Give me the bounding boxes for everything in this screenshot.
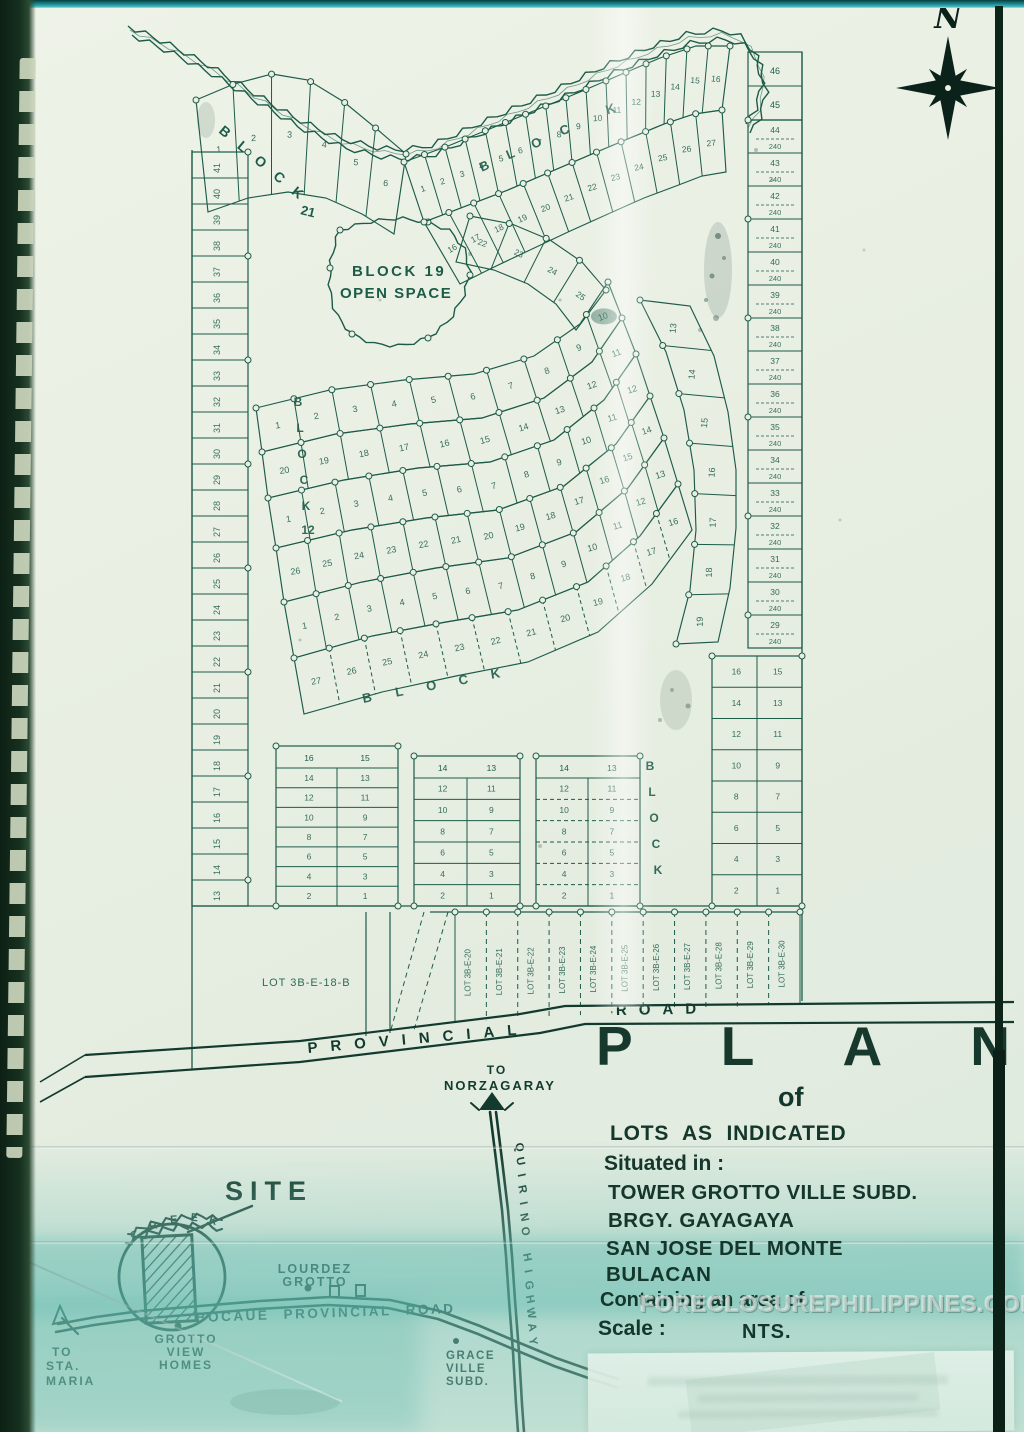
- svg-text:13: 13: [212, 891, 222, 901]
- svg-text:11: 11: [361, 793, 370, 803]
- svg-text:LOT 3B-E-20: LOT 3B-E-20: [464, 949, 473, 997]
- svg-text:10: 10: [304, 812, 314, 822]
- svg-text:16: 16: [212, 813, 222, 823]
- svg-text:C: C: [652, 837, 661, 851]
- svg-text:11: 11: [608, 784, 617, 794]
- plan-letter: L: [721, 1014, 755, 1076]
- svg-text:10: 10: [438, 805, 448, 815]
- svg-text:3: 3: [352, 404, 359, 415]
- svg-text:240: 240: [769, 142, 782, 151]
- svg-text:B: B: [294, 395, 303, 409]
- svg-text:H: H: [520, 1252, 533, 1263]
- plan-letter: A: [842, 1014, 882, 1076]
- svg-text:16: 16: [667, 516, 679, 528]
- svg-text:23: 23: [453, 641, 465, 653]
- svg-text:9: 9: [576, 121, 582, 131]
- plat-boundaries: [192, 52, 802, 1069]
- svg-text:E: E: [170, 1214, 178, 1226]
- svg-text:21: 21: [450, 534, 462, 546]
- svg-text:38: 38: [770, 323, 780, 333]
- svg-text:15: 15: [360, 753, 370, 763]
- svg-text:240: 240: [769, 538, 782, 547]
- svg-text:7: 7: [363, 832, 368, 842]
- svg-text:I: I: [521, 1269, 533, 1275]
- svg-text:41: 41: [212, 163, 222, 173]
- svg-text:LOT 3B-E-23: LOT 3B-E-23: [558, 946, 567, 994]
- svg-text:18: 18: [358, 448, 370, 460]
- svg-text:5: 5: [498, 153, 505, 164]
- svg-text:18: 18: [212, 761, 222, 771]
- svg-text:11: 11: [612, 520, 624, 532]
- svg-text:SITE: SITE: [225, 1176, 313, 1206]
- svg-text:12: 12: [559, 784, 569, 794]
- svg-text:22: 22: [212, 657, 222, 667]
- right-band: 13141516171819: [637, 297, 736, 647]
- svg-text:16: 16: [711, 73, 722, 84]
- svg-text:8: 8: [562, 826, 567, 836]
- svg-text:16: 16: [304, 753, 314, 763]
- compass-rose-icon: N: [896, 1, 1000, 140]
- svg-text:3: 3: [610, 869, 615, 879]
- svg-text:LOT 3B-E-28: LOT 3B-E-28: [715, 942, 724, 990]
- svg-text:9: 9: [489, 805, 494, 815]
- svg-text:40: 40: [770, 257, 780, 267]
- svg-text:1: 1: [363, 891, 368, 901]
- band-5: 12345678910111213: [281, 435, 678, 658]
- svg-text:14: 14: [559, 763, 569, 773]
- svg-text:8: 8: [523, 469, 530, 480]
- svg-text:R: R: [148, 1219, 159, 1233]
- svg-text:2: 2: [562, 890, 567, 900]
- svg-text:24: 24: [546, 264, 559, 277]
- scale-value: NTS.: [742, 1321, 792, 1344]
- svg-text:240: 240: [769, 340, 782, 349]
- svg-text:33: 33: [212, 371, 222, 381]
- svg-text:34: 34: [212, 345, 222, 355]
- svg-text:1: 1: [610, 890, 615, 900]
- svg-text:7: 7: [490, 480, 497, 491]
- svg-text:9: 9: [775, 760, 780, 770]
- svg-text:14: 14: [212, 865, 222, 875]
- ghost-text-smudge: [678, 1409, 938, 1419]
- svg-text:18: 18: [619, 571, 631, 583]
- title-line-barangay: BRGY. GAYAGAYA: [608, 1209, 794, 1233]
- svg-text:6: 6: [440, 848, 445, 858]
- svg-text:32: 32: [770, 521, 780, 531]
- svg-text:13: 13: [553, 404, 566, 417]
- svg-text:NORZAGARAY: NORZAGARAY: [444, 1078, 556, 1093]
- svg-text:9: 9: [363, 812, 368, 822]
- svg-text:15: 15: [690, 75, 700, 86]
- svg-text:BLOCK 19: BLOCK 19: [352, 263, 446, 280]
- svg-text:3: 3: [489, 869, 494, 879]
- svg-text:Y: Y: [526, 1336, 539, 1346]
- svg-text:25: 25: [212, 579, 222, 589]
- svg-text:1: 1: [419, 183, 427, 194]
- svg-text:27: 27: [310, 675, 322, 687]
- plan-of-label: of: [778, 1082, 803, 1113]
- svg-text:14: 14: [640, 424, 653, 437]
- title-line-province: BULACAN: [606, 1263, 712, 1287]
- title-line-situated: Situated in :: [604, 1152, 724, 1176]
- svg-text:11: 11: [773, 729, 782, 739]
- svg-text:O: O: [518, 1226, 532, 1237]
- grid-block-4: 16151413121110987654321: [709, 653, 805, 909]
- svg-text:GRACE: GRACE: [446, 1350, 495, 1362]
- svg-text:4: 4: [307, 871, 312, 881]
- svg-text:7: 7: [489, 826, 494, 836]
- svg-text:24: 24: [353, 550, 365, 562]
- svg-text:11: 11: [487, 784, 496, 794]
- svg-text:12: 12: [586, 379, 599, 392]
- svg-text:2: 2: [440, 890, 445, 900]
- svg-text:18: 18: [544, 510, 556, 522]
- grid-block-3: 1413121110987654321: [533, 753, 643, 909]
- svg-text:17: 17: [573, 495, 585, 507]
- svg-text:7: 7: [775, 792, 780, 802]
- svg-text:1: 1: [489, 890, 494, 900]
- svg-text:LOT 3B-E-24: LOT 3B-E-24: [589, 945, 598, 993]
- svg-text:16: 16: [732, 667, 742, 677]
- svg-text:24: 24: [633, 161, 645, 173]
- svg-text:35: 35: [212, 319, 222, 329]
- svg-text:9: 9: [560, 558, 567, 569]
- svg-text:7: 7: [507, 380, 515, 391]
- svg-text:TO: TO: [487, 1063, 507, 1077]
- svg-text:N: N: [517, 1212, 530, 1223]
- svg-text:G: G: [522, 1280, 536, 1291]
- svg-text:20: 20: [559, 612, 571, 624]
- svg-text:13: 13: [773, 698, 783, 708]
- svg-text:17: 17: [708, 517, 718, 527]
- svg-text:3: 3: [459, 168, 466, 179]
- svg-text:240: 240: [769, 571, 782, 580]
- svg-text:24: 24: [212, 605, 222, 615]
- grid-block-2: 1413121110987654321: [411, 753, 523, 909]
- svg-text:B L O C K: B L O C K: [216, 122, 311, 205]
- svg-text:O: O: [649, 811, 658, 825]
- svg-text:GROTTO: GROTTO: [282, 1275, 347, 1289]
- svg-text:10: 10: [732, 760, 742, 770]
- svg-text:19: 19: [592, 596, 604, 608]
- svg-text:1: 1: [216, 144, 222, 154]
- svg-text:15: 15: [621, 451, 634, 463]
- title-line-city: SAN JOSE DEL MONTE: [606, 1237, 843, 1261]
- svg-text:A: A: [525, 1322, 538, 1333]
- svg-text:23: 23: [610, 171, 622, 183]
- svg-text:10: 10: [580, 434, 592, 446]
- svg-text:GROTTO: GROTTO: [154, 1332, 217, 1346]
- svg-text:4: 4: [562, 869, 567, 879]
- svg-text:240: 240: [769, 373, 782, 382]
- svg-text:14: 14: [304, 773, 314, 783]
- svg-text:19: 19: [212, 735, 222, 745]
- svg-text:5: 5: [489, 848, 494, 858]
- svg-text:22: 22: [418, 538, 430, 550]
- paper-patch-inner: [686, 1352, 941, 1432]
- svg-text:TO: TO: [52, 1345, 72, 1359]
- svg-text:12: 12: [301, 523, 315, 537]
- svg-text:4: 4: [734, 854, 739, 864]
- svg-text:25: 25: [574, 289, 588, 303]
- svg-text:18: 18: [704, 568, 714, 578]
- svg-text:24: 24: [417, 649, 429, 661]
- svg-text:OPEN SPACE: OPEN SPACE: [340, 285, 452, 302]
- svg-text:W: W: [524, 1307, 538, 1320]
- svg-text:H: H: [523, 1294, 536, 1305]
- svg-text:21: 21: [299, 202, 317, 220]
- svg-text:16: 16: [446, 242, 459, 255]
- svg-text:14: 14: [686, 369, 697, 380]
- svg-text:7: 7: [610, 826, 615, 836]
- svg-text:17: 17: [398, 441, 410, 453]
- svg-text:12: 12: [304, 793, 314, 803]
- svg-text:12: 12: [635, 496, 647, 508]
- svg-text:21: 21: [525, 626, 537, 638]
- svg-text:8: 8: [734, 792, 739, 802]
- svg-text:13: 13: [654, 468, 666, 480]
- svg-text:26: 26: [212, 553, 222, 563]
- svg-text:14: 14: [517, 421, 530, 434]
- plan-letter: P: [596, 1014, 633, 1076]
- svg-text:16: 16: [598, 474, 610, 486]
- svg-text:8: 8: [543, 365, 551, 376]
- svg-text:4: 4: [391, 398, 398, 409]
- svg-text:12: 12: [631, 97, 641, 107]
- svg-text:R: R: [515, 1184, 529, 1195]
- svg-text:6: 6: [383, 178, 389, 189]
- svg-text:37: 37: [212, 267, 222, 277]
- svg-text:13: 13: [607, 763, 617, 773]
- svg-text:13: 13: [668, 323, 679, 334]
- svg-text:5: 5: [610, 848, 615, 858]
- subdivision-plat-drawing: BLOCK 19OPEN SPACE123456B L O C K2112345…: [0, 0, 1024, 1432]
- svg-text:B: B: [477, 157, 492, 175]
- svg-text:5: 5: [353, 157, 359, 167]
- svg-text:240: 240: [769, 241, 782, 250]
- svg-text:3: 3: [363, 871, 368, 881]
- svg-text:B: B: [646, 759, 655, 773]
- svg-text:23: 23: [212, 631, 222, 641]
- svg-text:15: 15: [212, 839, 222, 849]
- svg-text:13: 13: [651, 89, 661, 99]
- grid-block-1: 16151413121110987654321: [273, 743, 401, 909]
- svg-text:36: 36: [770, 389, 780, 399]
- svg-text:7: 7: [497, 580, 504, 591]
- svg-text:27: 27: [212, 527, 222, 537]
- band-4: 26252423222120191817161514: [273, 393, 664, 602]
- svg-text:Q: Q: [512, 1142, 526, 1153]
- right-lot-strip: 4645442404324042240412404024039240382403…: [745, 52, 802, 648]
- svg-text:5: 5: [363, 852, 368, 862]
- svg-text:21: 21: [563, 191, 575, 204]
- svg-text:19: 19: [318, 455, 330, 467]
- ghost-text-smudge: [698, 1393, 918, 1403]
- svg-text:1: 1: [275, 420, 281, 431]
- svg-text:8: 8: [307, 832, 312, 842]
- title-line-subdivision: TOWER GROTTO VILLE SUBD.: [608, 1181, 917, 1205]
- svg-text:27: 27: [706, 138, 717, 149]
- svg-text:26: 26: [346, 665, 358, 677]
- svg-text:25: 25: [321, 558, 333, 570]
- svg-text:39: 39: [212, 215, 222, 225]
- svg-text:3: 3: [775, 854, 780, 864]
- svg-text:46: 46: [770, 66, 780, 76]
- svg-text:5: 5: [430, 394, 437, 405]
- svg-text:2: 2: [333, 612, 340, 623]
- svg-text:240: 240: [769, 505, 782, 514]
- svg-text:LOT 3B-E-29: LOT 3B-E-29: [746, 941, 755, 989]
- svg-text:13: 13: [360, 773, 370, 783]
- svg-text:16: 16: [707, 467, 718, 478]
- svg-text:6: 6: [464, 585, 471, 596]
- svg-text:2: 2: [251, 133, 256, 143]
- svg-text:8: 8: [529, 571, 536, 582]
- svg-text:240: 240: [769, 637, 782, 646]
- svg-text:6: 6: [456, 484, 463, 495]
- scan-edge-line: [993, 1050, 1005, 1432]
- svg-text:10: 10: [593, 113, 603, 124]
- svg-text:O: O: [425, 677, 438, 694]
- svg-text:11: 11: [610, 347, 622, 360]
- svg-text:240: 240: [769, 472, 782, 481]
- svg-text:C: C: [128, 1228, 141, 1242]
- svg-text:12: 12: [732, 729, 742, 739]
- svg-text:LOT 3B-E-21: LOT 3B-E-21: [495, 948, 504, 996]
- svg-text:22: 22: [476, 237, 488, 250]
- scanned-plan-page: BLOCK 19OPEN SPACE123456B L O C K2112345…: [0, 0, 1024, 1432]
- svg-text:6: 6: [469, 391, 477, 402]
- svg-text:32: 32: [212, 397, 222, 407]
- svg-text:19: 19: [516, 212, 529, 225]
- svg-text:HOMES: HOMES: [159, 1358, 213, 1372]
- svg-text:VIEW: VIEW: [167, 1345, 206, 1359]
- vicinity-map: CREEKSITELOURDEZGROTTOBOCAUE PROVINCIAL …: [46, 1063, 618, 1432]
- svg-text:30: 30: [212, 449, 222, 459]
- svg-text:20: 20: [539, 201, 552, 214]
- svg-text:SUBD.: SUBD.: [446, 1376, 489, 1388]
- scale-label: Scale :: [598, 1317, 666, 1341]
- svg-text:6: 6: [307, 852, 312, 862]
- svg-text:5: 5: [775, 823, 780, 833]
- svg-text:8: 8: [440, 826, 445, 836]
- svg-text:B: B: [361, 689, 373, 706]
- svg-text:34: 34: [770, 455, 780, 465]
- svg-text:25: 25: [657, 152, 668, 163]
- svg-text:2: 2: [307, 891, 312, 901]
- watermark-text: FORECLOSUREPHILIPPINES.COM: [640, 1291, 1024, 1318]
- svg-text:29: 29: [770, 620, 780, 630]
- svg-text:33: 33: [770, 488, 780, 498]
- svg-text:11: 11: [606, 412, 618, 424]
- svg-text:LOT 3B-E-27: LOT 3B-E-27: [683, 942, 692, 990]
- svg-text:K: K: [302, 499, 311, 513]
- svg-text:35: 35: [770, 422, 780, 432]
- svg-text:3: 3: [366, 603, 373, 614]
- svg-text:2: 2: [439, 176, 447, 187]
- svg-text:26: 26: [290, 565, 301, 576]
- svg-text:20: 20: [482, 530, 494, 542]
- svg-text:1: 1: [301, 620, 308, 631]
- svg-text:LOT 3B-E-30: LOT 3B-E-30: [777, 940, 786, 988]
- svg-text:17: 17: [645, 545, 657, 557]
- svg-text:6: 6: [734, 823, 739, 833]
- svg-text:9: 9: [555, 457, 563, 468]
- svg-text:1: 1: [775, 885, 780, 895]
- svg-text:LOT 3B-E-25: LOT 3B-E-25: [621, 944, 630, 992]
- svg-text:240: 240: [769, 604, 782, 613]
- svg-text:3: 3: [287, 130, 292, 140]
- svg-text:14: 14: [438, 763, 448, 773]
- svg-text:41: 41: [770, 224, 780, 234]
- svg-text:43: 43: [770, 158, 780, 168]
- svg-text:E: E: [190, 1212, 199, 1225]
- svg-text:12: 12: [626, 383, 639, 396]
- svg-text:240: 240: [769, 406, 782, 415]
- svg-text:L: L: [504, 145, 517, 162]
- svg-text:2: 2: [313, 411, 320, 422]
- svg-text:240: 240: [769, 439, 782, 448]
- block19-open-space: BLOCK 19OPEN SPACE: [327, 217, 473, 347]
- title-line-lots: LOTS AS INDICATED: [610, 1122, 846, 1146]
- svg-text:30: 30: [770, 587, 780, 597]
- svg-text:MARIA: MARIA: [46, 1374, 95, 1388]
- svg-text:9: 9: [610, 805, 615, 815]
- svg-text:14: 14: [732, 698, 742, 708]
- svg-text:19: 19: [514, 521, 526, 533]
- svg-text:BOCAUE PROVINCIAL ROAD: BOCAUE PROVINCIAL ROAD: [196, 1301, 456, 1325]
- svg-text:38: 38: [212, 241, 222, 251]
- svg-text:23: 23: [385, 544, 397, 556]
- svg-text:240: 240: [769, 208, 782, 217]
- street-letters: BLOCKBLOCKBLOCK12BLOCK: [294, 100, 663, 877]
- svg-text:25: 25: [381, 656, 393, 668]
- svg-text:21: 21: [212, 683, 222, 693]
- scan-top-edge: [0, 0, 1024, 8]
- svg-text:16: 16: [438, 437, 450, 449]
- svg-text:K: K: [654, 863, 663, 877]
- svg-text:12: 12: [438, 784, 448, 794]
- svg-text:20: 20: [212, 709, 222, 719]
- svg-text:VILLE: VILLE: [446, 1363, 486, 1375]
- svg-text:10: 10: [586, 541, 598, 553]
- svg-text:45: 45: [770, 100, 780, 110]
- svg-text:4: 4: [321, 139, 327, 149]
- svg-text:31: 31: [212, 423, 222, 433]
- svg-text:2: 2: [734, 885, 739, 895]
- svg-text:10: 10: [559, 805, 569, 815]
- svg-text:15: 15: [479, 434, 491, 446]
- svg-text:4: 4: [440, 869, 445, 879]
- paper-patch: [588, 1351, 1015, 1432]
- svg-text:3: 3: [353, 498, 360, 509]
- svg-text:42: 42: [770, 191, 780, 201]
- svg-text:31: 31: [770, 554, 780, 564]
- svg-text:26: 26: [681, 143, 692, 154]
- svg-text:15: 15: [773, 667, 783, 677]
- svg-text:5: 5: [421, 487, 428, 498]
- svg-text:2: 2: [319, 506, 326, 517]
- svg-text:18: 18: [492, 222, 505, 235]
- svg-text:I: I: [515, 1173, 527, 1179]
- svg-text:28: 28: [212, 501, 222, 511]
- left-lot-strip: 4140393837363534333231302928272625242322…: [192, 149, 251, 906]
- svg-text:39: 39: [770, 290, 780, 300]
- svg-text:4: 4: [399, 597, 406, 608]
- svg-text:LOT 3B-E-26: LOT 3B-E-26: [652, 943, 661, 991]
- svg-text:37: 37: [770, 356, 780, 366]
- svg-text:20: 20: [279, 465, 290, 476]
